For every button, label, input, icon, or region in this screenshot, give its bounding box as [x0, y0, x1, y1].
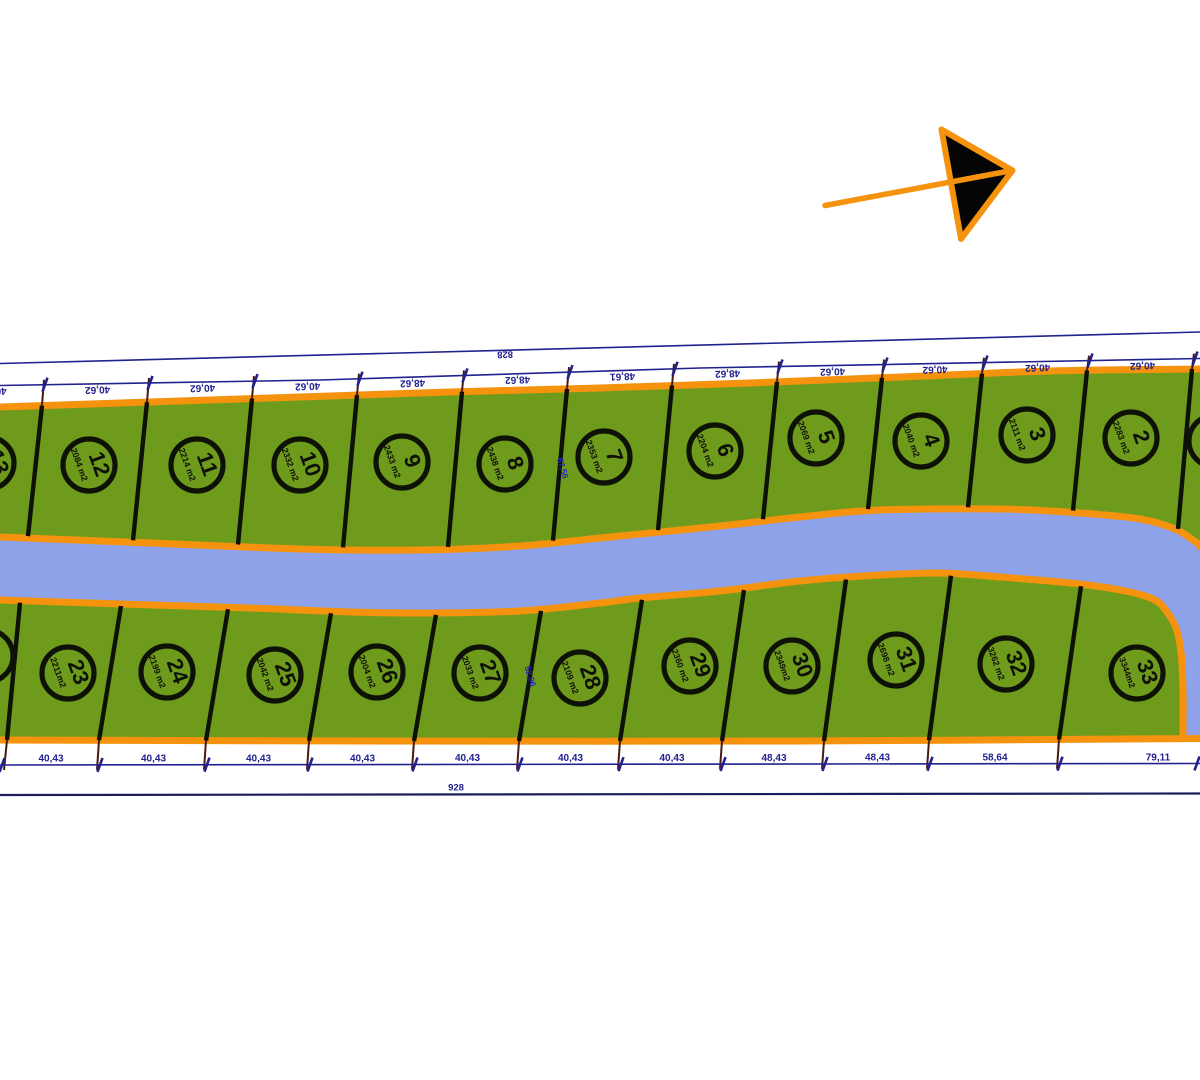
svg-text:928: 928 [448, 783, 464, 794]
svg-text:40,62: 40,62 [84, 383, 110, 395]
svg-text:40,62: 40,62 [922, 363, 948, 375]
svg-text:40,62: 40,62 [0, 385, 7, 397]
svg-text:40,62: 40,62 [294, 380, 320, 392]
svg-text:40,43: 40,43 [246, 754, 271, 765]
svg-text:40,43: 40,43 [659, 753, 684, 764]
svg-text:40,43: 40,43 [455, 753, 480, 764]
svg-text:79,11: 79,11 [1146, 752, 1171, 763]
svg-text:48,62: 48,62 [504, 373, 530, 385]
svg-text:48,43: 48,43 [865, 753, 890, 764]
svg-text:48,62: 48,62 [714, 367, 740, 379]
svg-text:40,62: 40,62 [819, 365, 845, 377]
svg-text:40,43: 40,43 [350, 753, 375, 764]
svg-text:40,43: 40,43 [558, 753, 583, 764]
svg-text:40,62: 40,62 [1024, 361, 1050, 373]
svg-text:828: 828 [497, 348, 513, 360]
svg-text:40,62: 40,62 [1129, 359, 1155, 371]
svg-text:48,61: 48,61 [609, 370, 635, 382]
svg-text:58,64: 58,64 [982, 753, 1007, 764]
svg-text:40,43: 40,43 [141, 754, 166, 765]
svg-text:48,62: 48,62 [399, 377, 425, 389]
svg-text:48,43: 48,43 [761, 753, 786, 764]
svg-text:40,62: 40,62 [189, 382, 215, 394]
svg-text:40,43: 40,43 [38, 754, 63, 765]
